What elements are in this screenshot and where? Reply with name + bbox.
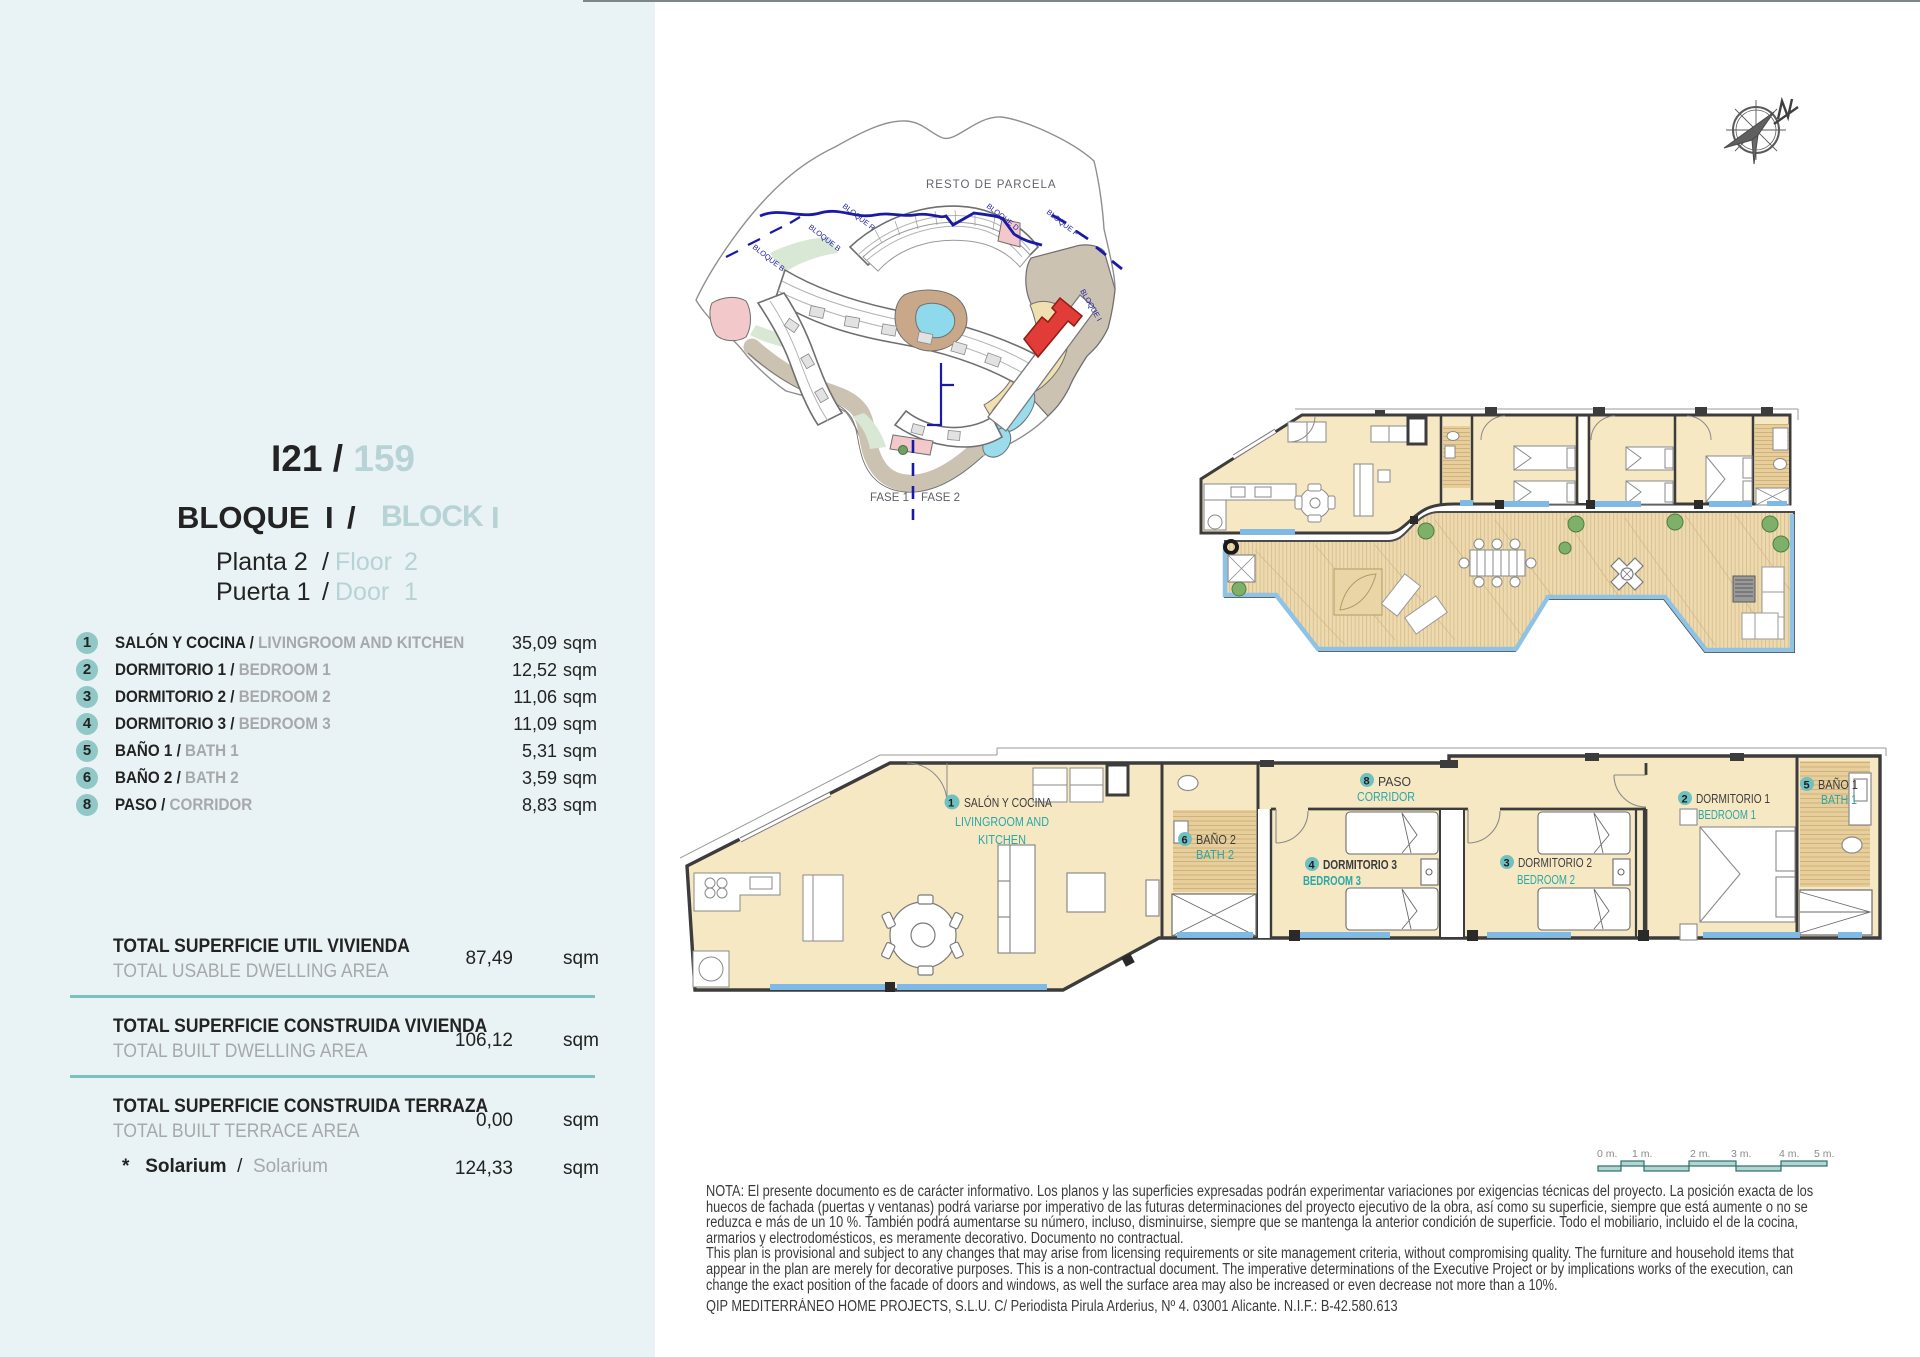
svg-text:FASE 2: FASE 2	[921, 492, 960, 504]
svg-text:DORMITORIO 2: DORMITORIO 2	[1518, 856, 1592, 870]
svg-text:BEDROOM 1: BEDROOM 1	[1698, 808, 1756, 822]
svg-text:0 m.: 0 m.	[1597, 1148, 1617, 1160]
svg-text:2 m.: 2 m.	[1690, 1148, 1710, 1160]
svg-text:BATH 1: BATH 1	[1821, 793, 1857, 807]
svg-text:8: 8	[1364, 776, 1370, 788]
svg-text:CORRIDOR: CORRIDOR	[1357, 790, 1415, 804]
svg-text:BEDROOM 2: BEDROOM 2	[1517, 873, 1575, 887]
svg-text:BATH 2: BATH 2	[1196, 848, 1234, 862]
svg-text:4: 4	[1309, 860, 1316, 872]
svg-text:6: 6	[1182, 835, 1188, 847]
svg-text:5: 5	[1804, 780, 1810, 792]
svg-text:BEDROOM 3: BEDROOM 3	[1303, 874, 1361, 888]
svg-text:1: 1	[948, 798, 954, 810]
svg-text:5 m.: 5 m.	[1814, 1148, 1834, 1160]
svg-text:3: 3	[1504, 858, 1510, 870]
svg-text:2: 2	[1682, 794, 1688, 806]
svg-text:1 m.: 1 m.	[1632, 1148, 1652, 1160]
svg-text:4 m.: 4 m.	[1779, 1148, 1799, 1160]
svg-text:3 m.: 3 m.	[1731, 1148, 1751, 1160]
svg-text:PASO: PASO	[1378, 775, 1411, 789]
svg-text:BAÑO 1: BAÑO 1	[1818, 778, 1858, 792]
svg-text:SALÓN Y COCINA: SALÓN Y COCINA	[964, 795, 1052, 810]
svg-text:RESTO DE PARCELA: RESTO DE PARCELA	[926, 179, 1057, 191]
svg-text:DORMITORIO 1: DORMITORIO 1	[1696, 792, 1770, 806]
svg-text:FASE 1: FASE 1	[870, 492, 909, 504]
svg-text:BAÑO 2: BAÑO 2	[1196, 833, 1236, 847]
svg-text:KITCHEN: KITCHEN	[978, 832, 1026, 847]
svg-text:DORMITORIO 3: DORMITORIO 3	[1323, 858, 1397, 872]
svg-text:LIVINGROOM AND: LIVINGROOM AND	[955, 814, 1049, 829]
